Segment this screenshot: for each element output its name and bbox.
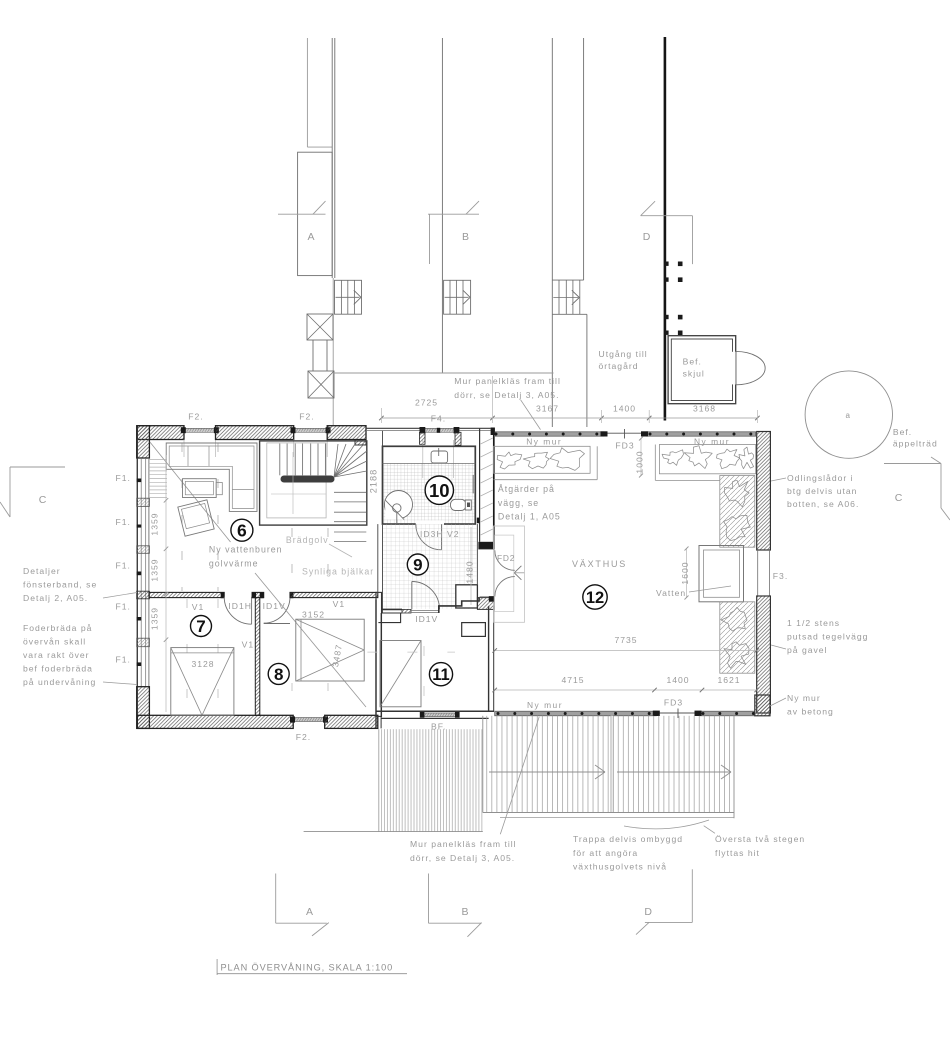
svg-text:B: B bbox=[462, 231, 470, 243]
svg-text:12: 12 bbox=[586, 589, 604, 607]
svg-text:F1.: F1. bbox=[116, 602, 131, 612]
svg-text:F1.: F1. bbox=[116, 473, 131, 483]
svg-text:8: 8 bbox=[274, 665, 283, 684]
svg-text:3128: 3128 bbox=[191, 659, 214, 669]
svg-text:Ny mur: Ny mur bbox=[787, 693, 821, 703]
svg-text:Detalj 2, A05.: Detalj 2, A05. bbox=[23, 593, 88, 603]
svg-text:Foderbräda på: Foderbräda på bbox=[23, 623, 92, 633]
svg-text:1 1/2 stens: 1 1/2 stens bbox=[787, 618, 840, 628]
svg-text:1621: 1621 bbox=[717, 675, 740, 685]
svg-text:A: A bbox=[307, 231, 315, 243]
svg-text:på undervåning: på undervåning bbox=[23, 677, 96, 687]
svg-text:av betong: av betong bbox=[787, 707, 834, 717]
svg-text:3167: 3167 bbox=[536, 404, 559, 414]
svg-text:bef foderbräda: bef foderbräda bbox=[23, 664, 93, 674]
svg-text:Bef.: Bef. bbox=[893, 427, 912, 437]
svg-text:F1.: F1. bbox=[116, 517, 131, 527]
svg-text:FD3: FD3 bbox=[664, 698, 683, 708]
svg-text:10: 10 bbox=[429, 480, 450, 501]
svg-text:1359: 1359 bbox=[150, 512, 160, 535]
svg-text:F2.: F2. bbox=[299, 412, 314, 422]
svg-text:Mur panelkläs fram till: Mur panelkläs fram till bbox=[454, 376, 561, 386]
svg-text:ID1H: ID1H bbox=[228, 601, 252, 611]
svg-text:7735: 7735 bbox=[614, 635, 637, 645]
svg-text:11: 11 bbox=[432, 666, 449, 684]
svg-text:1000: 1000 bbox=[635, 450, 645, 473]
svg-text:C: C bbox=[895, 492, 904, 504]
svg-text:7: 7 bbox=[196, 617, 205, 636]
svg-text:1359: 1359 bbox=[150, 607, 160, 630]
svg-text:D: D bbox=[644, 906, 653, 918]
svg-text:Odlingslådor i: Odlingslådor i bbox=[787, 473, 854, 483]
svg-text:V1: V1 bbox=[192, 602, 205, 612]
svg-text:Ny vattenburen: Ny vattenburen bbox=[209, 545, 283, 555]
svg-text:Synliga bjälkar: Synliga bjälkar bbox=[302, 567, 374, 577]
svg-text:F2.: F2. bbox=[296, 732, 311, 742]
svg-text:Trappa delvis ombyggd: Trappa delvis ombyggd bbox=[573, 834, 683, 844]
svg-text:fönsterband, se: fönsterband, se bbox=[23, 580, 97, 590]
svg-text:Bef.: Bef. bbox=[683, 357, 702, 367]
svg-text:örtagård: örtagård bbox=[599, 361, 639, 371]
svg-text:FD3: FD3 bbox=[615, 441, 634, 451]
svg-text:9: 9 bbox=[413, 556, 422, 575]
svg-text:växthusgolvets nivå: växthusgolvets nivå bbox=[573, 862, 667, 872]
svg-text:F1.: F1. bbox=[116, 655, 131, 665]
svg-text:PLAN ÖVERVÅNING, SKALA 1:100: PLAN ÖVERVÅNING, SKALA 1:100 bbox=[221, 963, 394, 973]
svg-text:C: C bbox=[39, 494, 48, 506]
svg-text:btg delvis utan: btg delvis utan bbox=[787, 486, 857, 496]
svg-text:Mur panelkläs fram till: Mur panelkläs fram till bbox=[410, 839, 517, 849]
svg-text:a: a bbox=[846, 411, 851, 420]
svg-text:för att angöra: för att angöra bbox=[573, 848, 638, 858]
svg-text:2725: 2725 bbox=[415, 398, 438, 408]
svg-text:dörr, se Detalj 3, A05.: dörr, se Detalj 3, A05. bbox=[410, 853, 515, 863]
svg-text:3152: 3152 bbox=[302, 610, 325, 620]
svg-text:F4.: F4. bbox=[431, 414, 446, 424]
svg-text:Detaljer: Detaljer bbox=[23, 566, 61, 576]
svg-text:Översta två stegen: Översta två stegen bbox=[715, 834, 805, 844]
svg-text:1400: 1400 bbox=[666, 675, 689, 685]
svg-text:flyttas hit: flyttas hit bbox=[715, 848, 760, 858]
svg-text:golvvärme: golvvärme bbox=[209, 559, 259, 569]
svg-text:Vatten: Vatten bbox=[656, 588, 686, 598]
svg-text:6: 6 bbox=[237, 521, 247, 541]
svg-text:B: B bbox=[461, 906, 469, 918]
svg-text:1600: 1600 bbox=[680, 561, 690, 584]
svg-text:VÄXTHUS: VÄXTHUS bbox=[572, 559, 627, 569]
svg-text:3168: 3168 bbox=[693, 404, 716, 414]
svg-text:Åtgärder på: Åtgärder på bbox=[498, 484, 555, 494]
svg-text:Ny mur: Ny mur bbox=[527, 700, 563, 710]
svg-text:skjul: skjul bbox=[683, 369, 705, 379]
svg-text:F3.: F3. bbox=[773, 571, 788, 581]
svg-text:äppelträd: äppelträd bbox=[893, 439, 938, 449]
svg-text:2188: 2188 bbox=[369, 469, 379, 493]
svg-text:ID1V: ID1V bbox=[415, 614, 438, 624]
svg-text:Utgång till: Utgång till bbox=[599, 349, 648, 359]
svg-text:F2.: F2. bbox=[188, 412, 203, 422]
svg-text:Ny mur: Ny mur bbox=[694, 437, 730, 447]
svg-text:vara rakt över: vara rakt över bbox=[23, 650, 90, 660]
svg-text:F1.: F1. bbox=[116, 561, 131, 571]
svg-text:V1: V1 bbox=[242, 640, 255, 650]
svg-text:Detalj 1, A05: Detalj 1, A05 bbox=[498, 512, 561, 522]
svg-text:V1: V1 bbox=[333, 599, 346, 609]
svg-text:1359: 1359 bbox=[150, 558, 160, 581]
svg-text:A: A bbox=[306, 906, 314, 918]
svg-text:1400: 1400 bbox=[613, 404, 636, 414]
svg-text:1480: 1480 bbox=[465, 560, 475, 583]
svg-text:övervån skall: övervån skall bbox=[23, 637, 86, 647]
svg-text:FD2: FD2 bbox=[497, 553, 515, 563]
svg-text:Ny mur: Ny mur bbox=[526, 437, 562, 447]
svg-text:D: D bbox=[643, 231, 652, 243]
svg-text:4715: 4715 bbox=[561, 675, 584, 685]
svg-text:dörr, se Detalj 3, A05.: dörr, se Detalj 3, A05. bbox=[454, 390, 559, 400]
svg-text:vägg, se: vägg, se bbox=[498, 498, 539, 508]
svg-text:på gavel: på gavel bbox=[787, 645, 828, 655]
svg-text:putsad tegelvägg: putsad tegelvägg bbox=[787, 632, 868, 642]
svg-text:botten, se A06.: botten, se A06. bbox=[787, 499, 859, 509]
